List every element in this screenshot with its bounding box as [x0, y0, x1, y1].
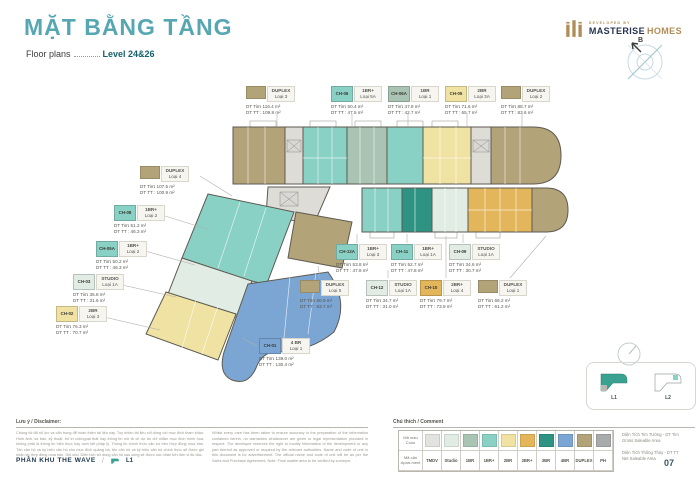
unit-area-line: DT TT: 31.6 m²	[73, 298, 124, 304]
legend-heading: Chú thích / Comment	[393, 419, 695, 428]
unit-variant-label: Loại 4	[447, 288, 467, 294]
zone-tower-icon	[110, 457, 120, 465]
unit-callout-ch-05: CH-052BRLoại 3ADT Tim: 71.6 m²DT TT: 65.…	[445, 86, 496, 116]
legend-swatch-4br	[556, 431, 575, 451]
unit-type-box: 1BR+Loại 2	[137, 205, 165, 221]
color-swatch	[425, 434, 440, 447]
unit-variant-label: Loại 2	[141, 213, 161, 219]
tower-l2-icon	[651, 371, 685, 393]
unit-callout-ch-06: CH-061BR+Loại 5ADT Tim: 50.4 m²DT TT: 47…	[331, 86, 382, 116]
zone-footer: PHÂN KHU THE WAVE / L1	[16, 456, 133, 465]
color-swatch	[596, 434, 611, 447]
legend-table: Mã màuColorMã cănApart-mentTMDVStudio1BR…	[398, 430, 614, 472]
unit-type-box: STUDIOLoại 1A	[96, 274, 124, 290]
unit-callout-ch-08: CH-081BR+Loại 2DT Tim: 51.2 m²DT TT: 46.…	[114, 205, 165, 235]
color-swatch	[501, 434, 516, 447]
unit-type-box: DUPLEXLoại 2	[522, 86, 550, 102]
unit-color-swatch	[246, 86, 266, 99]
unit-code-chip: CH-12	[366, 280, 388, 296]
unit-variant-label: Loại 4	[165, 174, 185, 180]
unit-callout-ch-05a: CH-05A1BR+Loại 2DT Tim: 50.2 m²DT TT: 46…	[96, 241, 147, 271]
unit-callout-duplex-lo-i-4: DUPLEXLoại 4DT Tim: 107.5 m²DT TT: 100.9…	[140, 166, 189, 196]
unit-areas: DT Tim: 34.6 m²DT TT: 30.7 m²	[449, 262, 500, 274]
key-map-l1-label: L1	[611, 395, 617, 401]
unit-callout-duplex-lo-i-2: DUPLEXLoại 2DT Tim: 88.7 m²DT TT: 83.6 m…	[501, 86, 550, 116]
legend-unit-type-2br: 2BR	[499, 451, 518, 471]
color-swatch	[558, 434, 573, 447]
unit-variant-label: Loại 3A	[472, 94, 492, 100]
legend-swatch-2br+	[518, 431, 537, 451]
key-map-l1: L1	[597, 371, 631, 401]
unit-code-chip: CH-13A	[336, 244, 358, 260]
unit-area-line: DT TT: 47.5 m²	[331, 110, 382, 116]
unit-areas: DT Tim: 34.7 m²DT TT: 31.0 m²	[366, 298, 417, 310]
unit-callout-ch-12: CH-12STUDIOLoại 1ADT Tim: 34.7 m²DT TT: …	[366, 280, 417, 310]
unit-area-line: DT TT: 83.7 m²	[300, 304, 349, 310]
unit-code-chip: CH-08	[114, 205, 136, 221]
unit-area-line: DT TT: 130.4 m²	[259, 362, 310, 368]
key-map-l2-label: L2	[665, 395, 671, 401]
unit-areas: DT Tim: 35.8 m²DT TT: 31.6 m²	[73, 292, 124, 304]
unit-color-swatch	[140, 166, 160, 179]
unit-callout-ch-01: CH-014 BRLoại 1DT Tim: 139.0 m²DT TT: 13…	[259, 338, 310, 368]
unit-type-box: 2BRLoại 3A	[468, 86, 496, 102]
unit-color-swatch	[501, 86, 521, 99]
note-net-area: Diện Tích Thông Thủy - DT TT Net Saleabl…	[622, 450, 696, 463]
unit-callout-ch-13a: CH-13A1BR+Loại 3DT Tim: 53.8 m²DT TT: 47…	[336, 244, 387, 274]
unit-area-line: DT TT: 30.7 m²	[449, 268, 500, 274]
unit-areas: DT Tim: 116.4 m²DT TT: 109.8 m²	[246, 104, 295, 116]
unit-variant-label: Loại 3	[83, 314, 103, 320]
unit-type-box: 1BRLoại 1	[411, 86, 439, 102]
unit-color-swatch	[478, 280, 498, 293]
legend-swatch-studio	[442, 431, 461, 451]
legend-swatch-tmdv	[423, 431, 442, 451]
color-swatch	[444, 434, 459, 447]
unit-color-swatch	[300, 280, 320, 293]
legend-unit-row-label: Mã cănApart-ment	[399, 451, 423, 471]
legend-unit-type-tmdv: TMDV	[423, 451, 442, 471]
unit-code-chip: CH-06A	[388, 86, 410, 102]
color-swatch	[577, 434, 592, 447]
unit-type-box: 1BR+Loại 1A	[414, 244, 442, 260]
unit-callout-ch-10: CH-102BR+Loại 4DT Tim: 79.7 m²DT TT: 73.…	[420, 280, 471, 310]
unit-area-line: DT TT: 65.7 m²	[445, 110, 496, 116]
legend-unit-type-ph: PH	[594, 451, 613, 471]
unit-code-chip: CH-05	[445, 86, 467, 102]
legend-color-row-label: Mã màuColor	[399, 431, 423, 451]
disclaimer-english: Whilst every care has been taken to ensu…	[212, 431, 368, 464]
unit-variant-label: Loại 1A	[418, 252, 438, 258]
unit-areas: DT Tim: 107.5 m²DT TT: 100.9 m²	[140, 184, 189, 196]
unit-area-line: DT TT: 83.6 m²	[501, 110, 550, 116]
unit-variant-label: Loại 1A	[393, 288, 413, 294]
legend-unit-type-1br: 1BR	[461, 451, 480, 471]
unit-type-box: STUDIOLoại 1A	[472, 244, 500, 260]
unit-type-box: 2BR+Loại 4	[443, 280, 471, 296]
unit-type-box: 4 BRLoại 1	[282, 338, 310, 354]
unit-areas: DT Tim: 53.8 m²DT TT: 47.8 m²	[336, 262, 387, 274]
legend-unit-type-4br: 4BR	[556, 451, 575, 471]
legend-swatch-duplex	[575, 431, 594, 451]
unit-type-box: 2BRLoại 3	[79, 306, 107, 322]
unit-area-line: DT TT: 46.3 m²	[96, 265, 147, 271]
unit-code-chip: CH-10	[420, 280, 442, 296]
unit-areas: DT Tim: 139.0 m²DT TT: 130.4 m²	[259, 356, 310, 368]
note-gross-area: Diện Tích Tim Tường - DT Tim Gross Salea…	[622, 432, 696, 445]
unit-areas: DT Tim: 50.2 m²DT TT: 46.3 m²	[96, 259, 147, 271]
unit-areas: DT Tim: 66.2 m²DT TT: 61.2 m²	[478, 298, 527, 310]
unit-area-line: DT TT: 46.3 m²	[114, 229, 165, 235]
page-number: 07	[664, 458, 674, 468]
unit-variant-label: Loại 1A	[476, 252, 496, 258]
unit-callout-ch-09: CH-09STUDIOLoại 1ADT Tim: 34.6 m²DT TT: …	[449, 244, 500, 274]
zone-separator: /	[102, 456, 104, 465]
unit-area-line: DT TT: 31.0 m²	[366, 304, 417, 310]
legend-swatch-2br	[499, 431, 518, 451]
unit-variant-label: Loại 1	[503, 288, 523, 294]
unit-variant-label: Loại 3	[271, 94, 291, 100]
unit-areas: DT Tim: 47.8 m²DT TT: 42.7 m²	[388, 104, 439, 116]
unit-code-chip: CH-02	[56, 306, 78, 322]
unit-type-box: 1BR+Loại 5A	[354, 86, 382, 102]
legend-unit-type-1br+: 1BR+	[480, 451, 499, 471]
unit-areas: DT Tim: 79.7 m²DT TT: 73.9 m²	[420, 298, 471, 310]
unit-areas: DT Tim: 76.3 m²DT TT: 70.7 m²	[56, 324, 107, 336]
unit-area-line: DT TT: 73.9 m²	[420, 304, 471, 310]
tower-l1-icon	[597, 371, 631, 393]
unit-code-chip: CH-03	[73, 274, 95, 290]
brochure-page: MẶT BẰNG TẦNG Floor plansLevel 24&26 DEV…	[0, 0, 700, 483]
disclaimer-heading: Lưu ý / Disclaimer:	[16, 419, 368, 428]
legend-notes: Diện Tích Tim Tường - DT Tim Gross Salea…	[622, 432, 696, 467]
unit-code-chip: CH-09	[449, 244, 471, 260]
unit-callout-ch-06a: CH-06A1BRLoại 1DT Tim: 47.8 m²DT TT: 42.…	[388, 86, 439, 116]
unit-area-line: DT TT: 47.8 m²	[391, 268, 442, 274]
unit-area-line: DT TT: 61.2 m²	[478, 304, 527, 310]
unit-callout-ch-03: CH-03STUDIOLoại 1ADT Tim: 35.8 m²DT TT: …	[73, 274, 124, 304]
unit-variant-label: Loại 5A	[358, 94, 378, 100]
unit-type-box: DUPLEXLoại 4	[161, 166, 189, 182]
legend-unit-type-2br+: 2BR+	[518, 451, 537, 471]
unit-variant-label: Loại 1	[415, 94, 435, 100]
legend-swatch-1br+	[480, 431, 499, 451]
unit-areas: DT Tim: 90.9 m²DT TT: 83.7 m²	[300, 298, 349, 310]
unit-callout-duplex-lo-i-3: DUPLEXLoại 3DT Tim: 116.4 m²DT TT: 109.8…	[246, 86, 295, 116]
color-swatch	[482, 434, 497, 447]
color-swatch	[520, 434, 535, 447]
zone-tower-label: L1	[126, 458, 133, 464]
unit-variant-label: Loại 5	[325, 288, 345, 294]
legend-unit-type-studio: Studio	[442, 451, 461, 471]
unit-variant-label: Loại 1A	[100, 282, 120, 288]
unit-code-chip: CH-11	[391, 244, 413, 260]
key-map: L1 L2	[586, 362, 696, 410]
unit-areas: DT Tim: 52.7 m²DT TT: 47.8 m²	[391, 262, 442, 274]
unit-callout-ch-11: CH-111BR+Loại 1ADT Tim: 52.7 m²DT TT: 47…	[391, 244, 442, 274]
disclaimer-vietnamese: Chúng tôi đã nỗ lực và cẩn trọng để hoàn…	[16, 431, 204, 459]
zone-name: PHÂN KHU THE WAVE	[16, 457, 96, 464]
unit-callout-ch-02: CH-022BRLoại 3DT Tim: 76.3 m²DT TT: 70.7…	[56, 306, 107, 336]
unit-area-line: DT TT: 100.9 m²	[140, 190, 189, 196]
unit-variant-label: Loại 3	[363, 252, 383, 258]
unit-area-line: DT TT: 70.7 m²	[56, 330, 107, 336]
unit-area-line: DT TT: 109.8 m²	[246, 110, 295, 116]
color-swatch	[539, 434, 554, 447]
unit-type-box: 1BR+Loại 2	[119, 241, 147, 257]
unit-area-line: DT TT: 42.7 m²	[388, 110, 439, 116]
unit-callout-duplex-lo-i-5: DUPLEXLoại 5DT Tim: 90.9 m²DT TT: 83.7 m…	[300, 280, 349, 310]
color-swatch	[463, 434, 478, 447]
unit-variant-label: Loại 2	[526, 94, 546, 100]
unit-code-chip: CH-01	[259, 338, 281, 354]
unit-type-box: DUPLEXLoại 3	[267, 86, 295, 102]
unit-areas: DT Tim: 51.2 m²DT TT: 46.3 m²	[114, 223, 165, 235]
legend-swatch-ph	[594, 431, 613, 451]
unit-callout-duplex-lo-i-1: DUPLEXLoại 1DT Tim: 66.2 m²DT TT: 61.2 m…	[478, 280, 527, 310]
unit-areas: DT Tim: 50.4 m²DT TT: 47.5 m²	[331, 104, 382, 116]
legend-swatch-3br	[537, 431, 556, 451]
legend-unit-type-duplex: DUPLEX	[575, 451, 594, 471]
unit-type-box: DUPLEXLoại 5	[321, 280, 349, 296]
unit-code-chip: CH-06	[331, 86, 353, 102]
unit-type-box: DUPLEXLoại 1	[499, 280, 527, 296]
unit-areas: DT Tim: 71.6 m²DT TT: 65.7 m²	[445, 104, 496, 116]
legend-unit-type-3br: 3BR	[537, 451, 556, 471]
key-map-l2: L2	[651, 371, 685, 401]
legend-swatch-1br	[461, 431, 480, 451]
unit-areas: DT Tim: 88.7 m²DT TT: 83.6 m²	[501, 104, 550, 116]
unit-code-chip: CH-05A	[96, 241, 118, 257]
unit-variant-label: Loại 2	[123, 249, 143, 255]
unit-area-line: DT TT: 47.8 m²	[336, 268, 387, 274]
unit-type-box: 1BR+Loại 3	[359, 244, 387, 260]
unit-variant-label: Loại 1	[286, 346, 306, 352]
unit-type-box: STUDIOLoại 1A	[389, 280, 417, 296]
